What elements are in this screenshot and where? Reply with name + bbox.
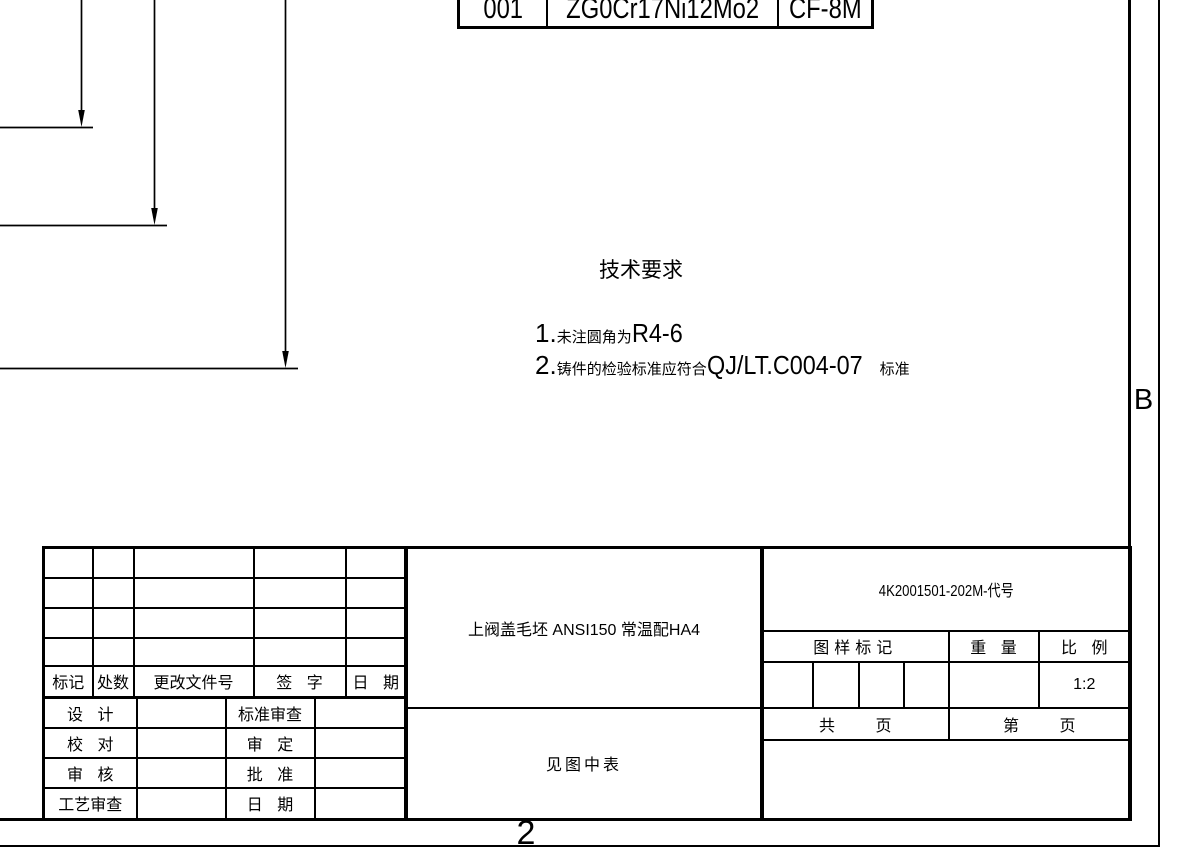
rev-empty-cell <box>44 548 93 578</box>
inner-frame-bottom-border <box>0 818 1131 821</box>
rev-empty-cell <box>93 608 134 638</box>
material-equivalent: CF-8M <box>779 0 871 26</box>
rev-empty-cell <box>254 578 346 608</box>
sig-value-cell <box>315 788 407 820</box>
rev-empty-cell <box>254 638 346 666</box>
weight-label: 重 量 <box>949 631 1039 662</box>
rev-empty-cell <box>346 578 407 608</box>
leader-arrow-1 <box>0 0 93 128</box>
tech-req-item-1: 1.未注圆角为R4-6 <box>535 318 688 349</box>
zone-marker-row: B <box>1128 382 1159 418</box>
revision-table: 标记 处数 更改文件号 签 字 日 期 <box>42 546 408 699</box>
scale-label: 比 例 <box>1039 631 1131 662</box>
rev-empty-cell <box>93 548 134 578</box>
title-middle-section: 上阀盖毛坯 ANSI150 常温配HA4 见图中表 <box>404 546 764 821</box>
signature-table: 设 计 标准审查 校 对 审 定 审 核 批 准 工艺审查 日 期 <box>42 696 408 821</box>
rev-empty-cell <box>346 638 407 666</box>
stamp-cell <box>813 662 859 708</box>
title-right-section: 4K2001501-202M-代号 图样标记 重 量 比 例 1:2 共 页 第… <box>760 546 1132 821</box>
sig-label-check: 校 对 <box>44 728 137 758</box>
material-item-no: 001 <box>459 0 547 26</box>
sig-value-cell <box>315 698 407 728</box>
rev-header-docno: 更改文件号 <box>134 666 254 698</box>
drawing-number: 4K2001501-202M-代号 <box>762 548 1131 631</box>
rev-empty-cell <box>44 608 93 638</box>
leader-arrow-3 <box>0 0 298 369</box>
total-pages-label: 共 页 <box>762 708 949 740</box>
weight-value <box>949 662 1039 708</box>
sig-value-cell <box>315 758 407 788</box>
material-note: 见图中表 <box>406 708 763 820</box>
tech-req-title: 技术要求 <box>576 254 706 284</box>
rev-empty-cell <box>346 548 407 578</box>
sig-label-date: 日 期 <box>226 788 315 820</box>
rev-header-signature: 签 字 <box>254 666 346 698</box>
sig-label-process-review: 工艺审查 <box>44 788 137 820</box>
sig-value-cell <box>315 728 407 758</box>
rev-empty-cell <box>254 548 346 578</box>
rev-empty-cell <box>134 548 254 578</box>
sheet-edge-bottom <box>0 845 1160 847</box>
rev-header-mark: 标记 <box>44 666 93 698</box>
stamp-mark-label: 图样标记 <box>762 631 949 662</box>
scale-value: 1:2 <box>1039 662 1131 708</box>
rev-empty-cell <box>44 638 93 666</box>
rev-empty-cell <box>346 608 407 638</box>
stamp-cell <box>762 662 813 708</box>
tech-req-item-2: 2.铸件的检验标准应符合QJ/LT.C004-07标准 <box>535 350 910 381</box>
sig-value-cell <box>137 728 226 758</box>
sig-value-cell <box>137 698 226 728</box>
sig-label-design: 设 计 <box>44 698 137 728</box>
material-grade: ZG0Cr17Ni12Mo2 <box>548 0 777 26</box>
sig-value-cell <box>137 788 226 820</box>
rev-empty-cell <box>93 578 134 608</box>
sig-label-ratify: 批 准 <box>226 758 315 788</box>
material-table-border <box>871 0 874 27</box>
rev-empty-cell <box>93 638 134 666</box>
sig-label-audit: 审 核 <box>44 758 137 788</box>
title-block-empty-cell <box>762 740 1131 820</box>
page-number-label: 第 页 <box>949 708 1131 740</box>
sheet-edge-right <box>1158 0 1160 847</box>
sig-value-cell <box>137 758 226 788</box>
sig-label-std-review: 标准审查 <box>226 698 315 728</box>
rev-empty-cell <box>134 638 254 666</box>
stamp-cell <box>904 662 949 708</box>
part-title: 上阀盖毛坯 ANSI150 常温配HA4 <box>406 548 763 708</box>
rev-empty-cell <box>134 608 254 638</box>
zone-marker-column: 2 <box>500 813 552 853</box>
material-table-border <box>457 26 874 29</box>
rev-header-date: 日 期 <box>346 666 407 698</box>
drawing-sheet: 001 ZG0Cr17Ni12Mo2 CF-8M 技术要求 1.未注圆角为R4-… <box>0 0 1194 856</box>
stamp-cell <box>859 662 904 708</box>
rev-header-count: 处数 <box>93 666 134 698</box>
rev-empty-cell <box>44 578 93 608</box>
rev-empty-cell <box>254 608 346 638</box>
rev-empty-cell <box>134 578 254 608</box>
sig-label-approve-review: 审 定 <box>226 728 315 758</box>
